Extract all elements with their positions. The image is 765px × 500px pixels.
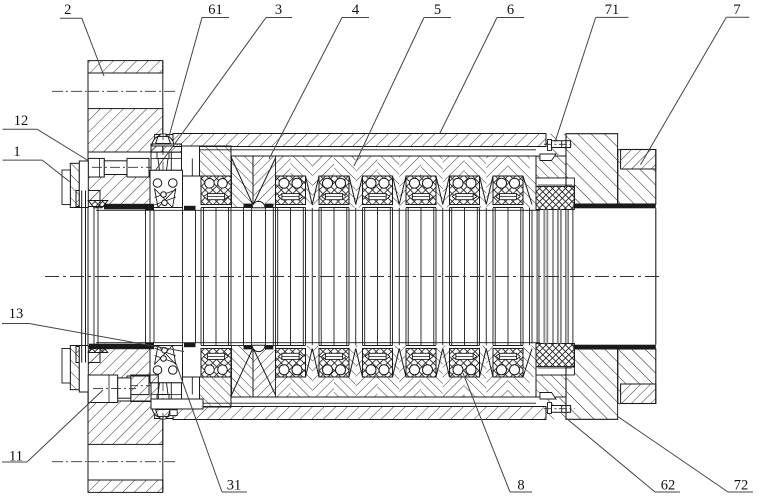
svg-text:4: 4	[352, 2, 360, 18]
svg-text:7: 7	[733, 2, 740, 18]
svg-text:2: 2	[64, 2, 71, 18]
svg-text:31: 31	[227, 478, 242, 494]
svg-text:12: 12	[14, 113, 29, 129]
svg-text:5: 5	[434, 2, 441, 18]
svg-text:3: 3	[275, 2, 282, 18]
svg-text:1: 1	[13, 144, 20, 160]
svg-text:8: 8	[517, 478, 524, 494]
svg-text:62: 62	[661, 478, 676, 494]
svg-text:72: 72	[734, 478, 749, 494]
svg-text:6: 6	[507, 2, 514, 18]
svg-text:71: 71	[605, 2, 620, 18]
svg-text:13: 13	[9, 306, 24, 322]
svg-text:61: 61	[208, 2, 223, 18]
